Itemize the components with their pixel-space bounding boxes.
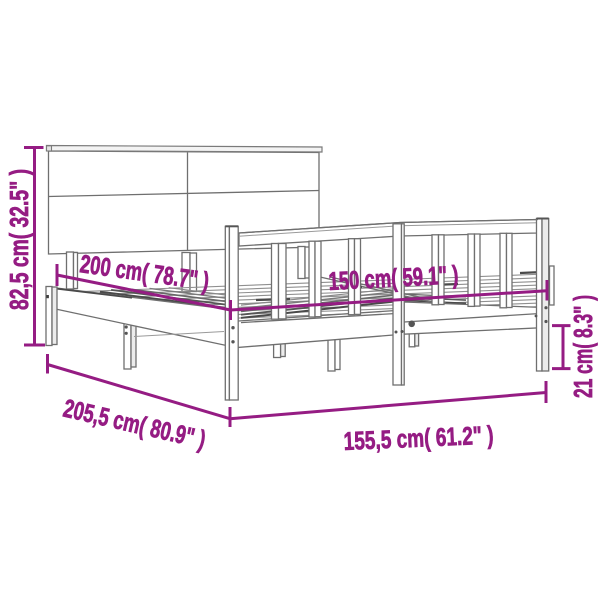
svg-text:21 cm( 8.3" ): 21 cm( 8.3" ) xyxy=(570,295,598,398)
svg-text:82,5 cm( 32.5" ): 82,5 cm( 32.5" ) xyxy=(6,169,34,310)
